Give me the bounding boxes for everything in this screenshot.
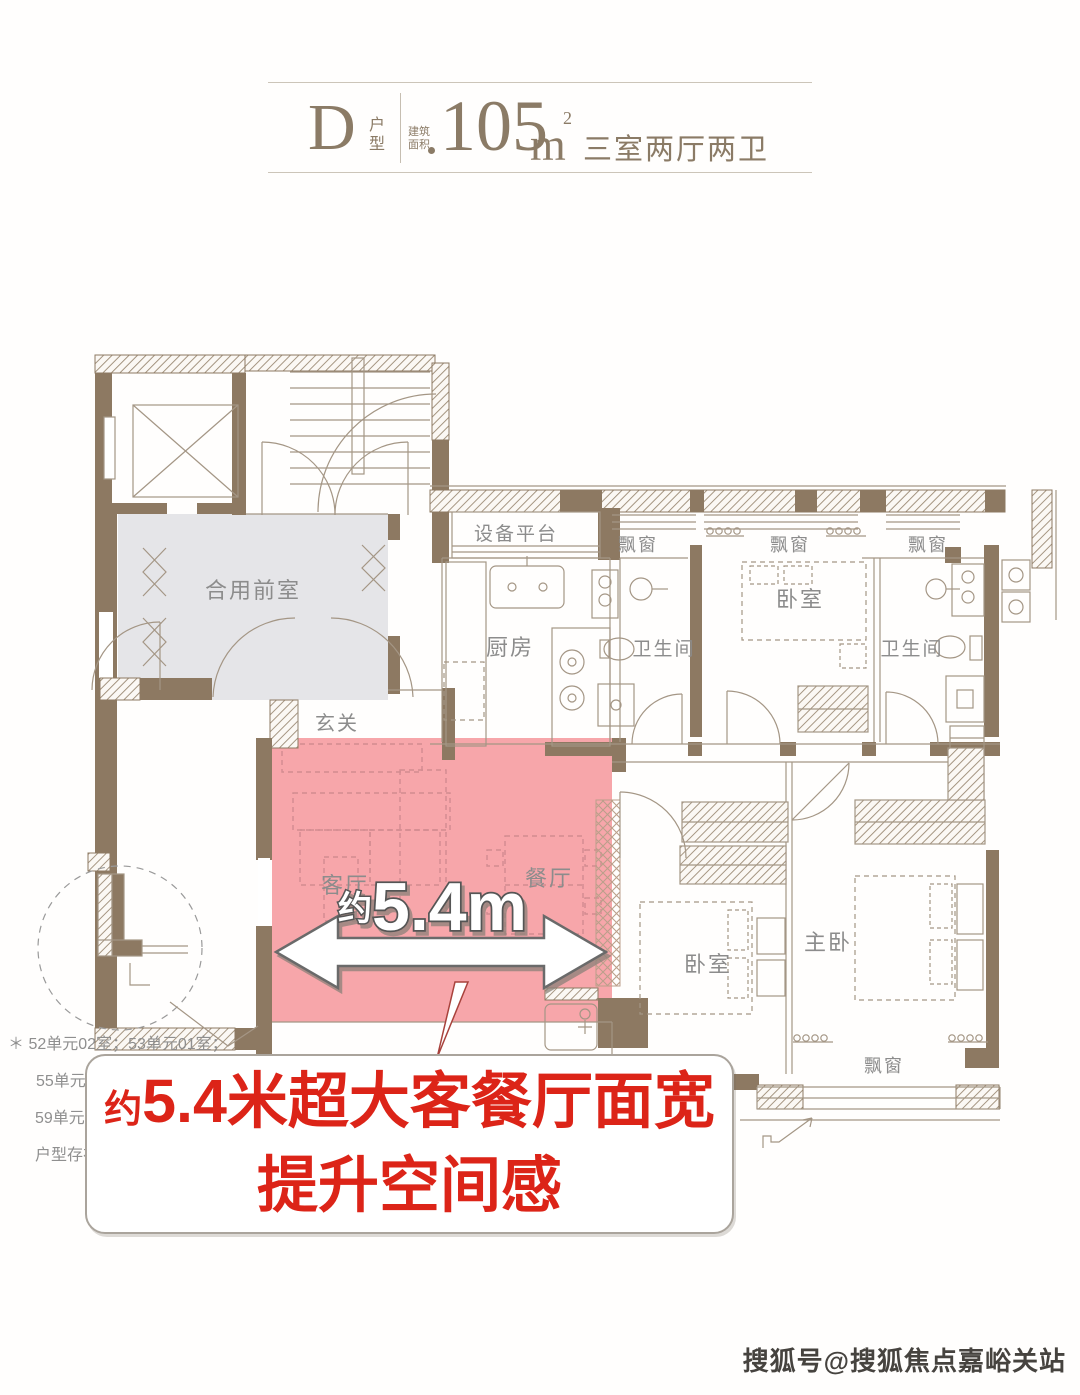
label-bedroom-middle: 卧室 (684, 952, 732, 977)
label-kitchen: 厨房 (486, 635, 534, 660)
label-bay-window-2: 飘窗 (770, 535, 810, 555)
watermark: 搜狐号@搜狐焦点嘉峪关站 (743, 1341, 1066, 1378)
walls (88, 355, 1052, 1109)
label-bay-window-3: 飘窗 (908, 535, 948, 555)
label-shared-front-room: 合用前室 (205, 578, 301, 603)
label-bathroom-top: 卫生间 (632, 638, 695, 660)
label-foyer: 玄关 (315, 712, 359, 735)
label-bedroom-top: 卧室 (776, 587, 824, 612)
footnote-line1: 52单元02室；53单元01室； (28, 1036, 227, 1053)
label-bay-window-4: 飘窗 (864, 1056, 904, 1076)
label-bathroom-right: 卫生间 (880, 638, 943, 660)
label-bay-window-1: 飘窗 (618, 535, 658, 555)
banner-line2-text: 提升空间感 (257, 1146, 562, 1224)
shared-front-room-fill (118, 514, 388, 700)
banner-line1-text: 5.4米超大客餐厅面宽 (142, 1067, 715, 1135)
banner-line1-prefix: 约 (104, 1089, 142, 1131)
dimension-value: 5.4m (372, 869, 527, 945)
footnote-marker: ＊ (8, 1036, 24, 1053)
label-dining-room: 餐厅 (525, 866, 573, 891)
label-equipment-platform: 设备平台 (474, 523, 558, 545)
label-master-bedroom: 主卧 (804, 930, 852, 955)
dimension-prefix: 约 (338, 890, 372, 928)
callout-banner: 约5.4米超大客餐厅面宽 提升空间感 (85, 1054, 734, 1234)
